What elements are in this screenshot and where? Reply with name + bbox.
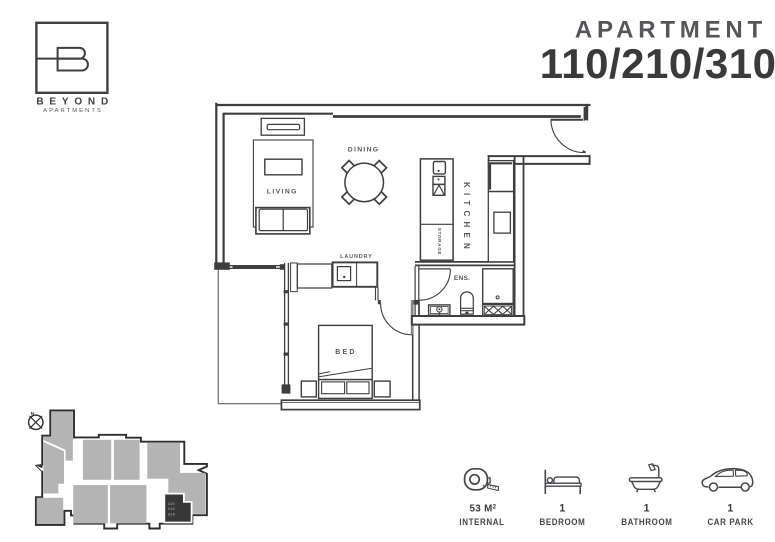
- svg-text:ENS.: ENS.: [454, 275, 470, 282]
- svg-text:LIVING: LIVING: [267, 188, 298, 195]
- svg-text:DINING: DINING: [348, 147, 380, 154]
- svg-text:1: 1: [727, 503, 733, 515]
- svg-text:BEDROOM: BEDROOM: [539, 516, 585, 527]
- svg-text:BEYOND: BEYOND: [36, 97, 114, 108]
- svg-text:BED: BED: [335, 349, 356, 356]
- svg-text:CAR PARK: CAR PARK: [707, 516, 753, 527]
- svg-text:KITCHEN: KITCHEN: [462, 182, 471, 254]
- svg-text:LAUNDRY: LAUNDRY: [340, 254, 372, 260]
- svg-text:BATHROOM: BATHROOM: [621, 516, 672, 527]
- svg-text:53 M2: 53 M2: [470, 503, 497, 514]
- svg-text:1: 1: [643, 503, 649, 515]
- svg-text:1: 1: [559, 503, 565, 515]
- svg-text:310: 310: [168, 511, 176, 516]
- svg-text:APARTMENTS: APARTMENTS: [43, 108, 103, 114]
- svg-text:110/210/310: 110/210/310: [540, 40, 775, 87]
- svg-text:STORAGE: STORAGE: [437, 228, 442, 256]
- svg-text:INTERNAL: INTERNAL: [459, 516, 504, 527]
